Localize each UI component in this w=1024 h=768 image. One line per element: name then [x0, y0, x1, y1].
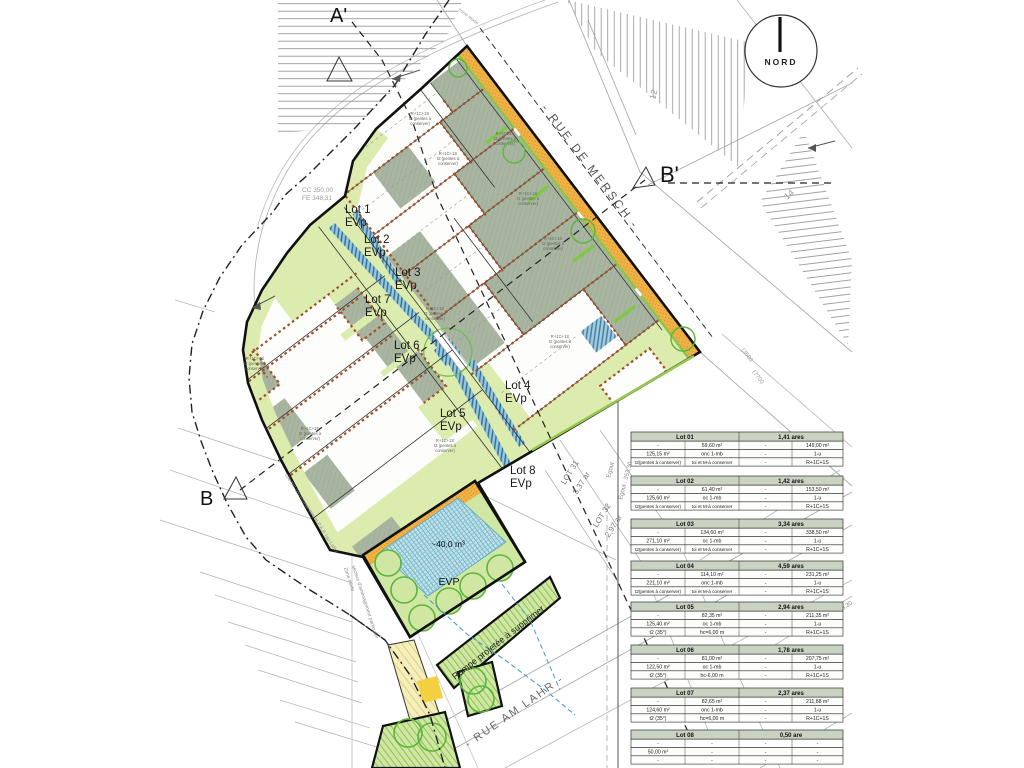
svg-text:Lot 4: Lot 4 — [505, 380, 531, 392]
svg-text:122,50 m²: 122,50 m² — [646, 665, 670, 671]
svg-text:-: - — [765, 460, 767, 466]
svg-text:Lot 5: Lot 5 — [440, 408, 466, 420]
svg-text:zone mixte: zone mixte — [457, 7, 480, 27]
svg-text:conserver): conserver) — [245, 366, 265, 371]
svg-text:-: - — [765, 547, 767, 553]
svg-text:1-u: 1-u — [814, 496, 822, 502]
svg-text:3,34 ares: 3,34 ares — [778, 522, 804, 528]
svg-text:1-u: 1-u — [814, 622, 822, 628]
svg-text:Lot 02: Lot 02 — [676, 479, 694, 485]
svg-text:82,65 m²: 82,65 m² — [702, 699, 723, 705]
svg-text:-: - — [765, 539, 767, 545]
svg-text:-: - — [657, 656, 659, 662]
svg-text:1-u: 1-u — [814, 452, 822, 458]
svg-text:Lot 2: Lot 2 — [364, 234, 390, 246]
svg-text:(7700: (7700 — [750, 370, 764, 386]
svg-text:Lot 7: Lot 7 — [365, 294, 391, 306]
svg-text:hc-6,00 m: hc-6,00 m — [700, 673, 723, 679]
svg-text:-: - — [765, 443, 767, 449]
svg-text:Lot 07: Lot 07 — [676, 691, 694, 697]
svg-text:Lot 1: Lot 1 — [345, 204, 371, 216]
svg-text:-: - — [765, 758, 767, 764]
svg-text:EVp: EVp — [364, 247, 386, 259]
svg-text:-: - — [765, 665, 767, 671]
svg-text:toi et M-à conserver: toi et M-à conserver — [692, 504, 733, 509]
svg-text:1-u: 1-u — [814, 539, 822, 545]
svg-text:211,35 m²: 211,35 m² — [806, 613, 829, 619]
svg-text:4,59 ares: 4,59 ares — [778, 564, 804, 570]
svg-text:-: - — [765, 630, 767, 636]
svg-text:Egout: Egout — [606, 461, 616, 478]
svg-text:-: - — [711, 750, 713, 756]
svg-text:conserver): conserver) — [543, 246, 563, 251]
svg-text:0,50 are: 0,50 are — [780, 733, 803, 739]
svg-text:-: - — [765, 708, 767, 714]
svg-text:-: - — [765, 581, 767, 587]
svg-text:oc 1-mb: oc 1-mb — [703, 665, 722, 671]
svg-text:-: - — [765, 487, 767, 493]
svg-text:EVp: EVp — [505, 393, 527, 405]
svg-text:207,75 m²: 207,75 m² — [806, 656, 830, 662]
svg-text:2,94 ares: 2,94 ares — [778, 605, 804, 611]
svg-text:conserver): conserver) — [435, 448, 455, 453]
svg-text:-: - — [817, 750, 819, 756]
svg-text:conserver): conserver) — [300, 436, 320, 441]
svg-text:t2 (35°): t2 (35°) — [649, 716, 666, 722]
svg-text:R+1C+1S: R+1C+1S — [806, 547, 829, 553]
svg-text:-: - — [765, 622, 767, 628]
svg-text:NORD: NORD — [764, 57, 797, 67]
svg-text:Lot 04: Lot 04 — [676, 564, 694, 570]
svg-text:Lot 01: Lot 01 — [676, 435, 694, 441]
svg-text:82,35 m²: 82,35 m² — [702, 613, 723, 619]
svg-text:1,42 ares: 1,42 ares — [778, 479, 804, 485]
svg-text:oc 1-mb: oc 1-mb — [703, 622, 722, 628]
svg-text:t2(pentes à conserver): t2(pentes à conserver) — [635, 589, 681, 594]
svg-text:1-u: 1-u — [814, 708, 822, 714]
svg-text:-: - — [765, 613, 767, 619]
svg-text:59,60 m²: 59,60 m² — [702, 443, 723, 449]
svg-text:t2(pentes à conserver): t2(pentes à conserver) — [635, 547, 681, 552]
svg-text:1,78 ares: 1,78 ares — [778, 648, 804, 654]
svg-text:-: - — [657, 613, 659, 619]
svg-text:t2 (35°): t2 (35°) — [649, 630, 666, 636]
svg-text:-: - — [657, 741, 659, 747]
svg-text:221,10 m²: 221,10 m² — [646, 581, 670, 587]
svg-text:t2(pentes à conserver): t2(pentes à conserver) — [635, 504, 681, 509]
svg-text:conserver): conserver) — [425, 316, 445, 321]
svg-text:conserver): conserver) — [410, 121, 430, 126]
svg-text:EVp: EVp — [394, 353, 416, 365]
svg-text:-: - — [765, 656, 767, 662]
svg-text:2,37 ares: 2,37 ares — [778, 691, 804, 697]
svg-text:onc 1-mb: onc 1-mb — [701, 708, 723, 714]
svg-text:conserver): conserver) — [550, 344, 570, 349]
svg-text:R+1C+1S: R+1C+1S — [806, 460, 829, 466]
svg-text:CC 350,00: CC 350,00 — [302, 187, 333, 194]
svg-text:211,88 m²: 211,88 m² — [806, 699, 829, 705]
svg-text:-: - — [765, 530, 767, 536]
svg-text:338,50 m²: 338,50 m² — [806, 530, 830, 536]
svg-text:134,60 m²: 134,60 m² — [700, 530, 724, 536]
svg-text:125,40 m²: 125,40 m² — [646, 622, 670, 628]
svg-text:~40,0 m³: ~40,0 m³ — [431, 539, 465, 549]
svg-text:-: - — [765, 452, 767, 458]
svg-text:-: - — [765, 572, 767, 578]
svg-text:Lot 6: Lot 6 — [394, 340, 420, 352]
svg-text:-: - — [657, 443, 659, 449]
svg-text:B: B — [200, 488, 213, 510]
svg-text:oc 1-mb: oc 1-mb — [703, 539, 722, 545]
svg-text:R+1C+1S: R+1C+1S — [806, 630, 829, 636]
svg-text:-: - — [711, 758, 713, 764]
svg-text:231,25 m²: 231,25 m² — [806, 572, 830, 578]
svg-text:EVP: EVP — [438, 576, 459, 588]
svg-text:125,15 m²: 125,15 m² — [646, 452, 670, 458]
svg-text:EVp: EVp — [345, 217, 367, 229]
svg-text:R+1C+1S: R+1C+1S — [806, 504, 829, 510]
svg-text:-: - — [765, 699, 767, 705]
svg-text:-: - — [765, 716, 767, 722]
svg-text:conserver): conserver) — [438, 161, 458, 166]
svg-text:-: - — [765, 496, 767, 502]
svg-text:toi et M-à conserver: toi et M-à conserver — [692, 547, 733, 552]
svg-text:149,00 m²: 149,00 m² — [806, 443, 830, 449]
svg-text:153,50 m²: 153,50 m² — [806, 487, 830, 493]
svg-text:-: - — [657, 487, 659, 493]
svg-text:hc=6,00 m: hc=6,00 m — [700, 630, 724, 636]
svg-text:-: - — [657, 758, 659, 764]
svg-text:-: - — [657, 572, 659, 578]
svg-text:t2 (35°): t2 (35°) — [649, 673, 666, 679]
svg-text:Lot 8: Lot 8 — [510, 465, 536, 477]
svg-text:1,41 ares: 1,41 ares — [778, 435, 804, 441]
svg-text:onc 1-mb: onc 1-mb — [701, 581, 723, 587]
svg-text:FE 348,31: FE 348,31 — [302, 195, 332, 202]
svg-text:t2(pentes à conserver): t2(pentes à conserver) — [635, 460, 681, 465]
svg-text:124,60 m²: 124,60 m² — [646, 708, 670, 714]
svg-text:Lot 08: Lot 08 — [676, 733, 694, 739]
svg-text:-: - — [657, 530, 659, 536]
svg-text:-: - — [711, 741, 713, 747]
svg-text:hc=6,00 m: hc=6,00 m — [700, 716, 724, 722]
svg-text:-: - — [817, 758, 819, 764]
svg-text:-: - — [765, 504, 767, 510]
svg-text:-: - — [765, 589, 767, 595]
svg-text:R+1C+1S: R+1C+1S — [806, 716, 829, 722]
svg-text:toi et M-à conserver: toi et M-à conserver — [692, 589, 733, 594]
svg-text:-: - — [765, 673, 767, 679]
svg-text:125,60 m²: 125,60 m² — [646, 496, 670, 502]
svg-text:oc 1-mb: oc 1-mb — [703, 496, 722, 502]
svg-text:114,10 m²: 114,10 m² — [701, 572, 724, 578]
svg-text:EVp: EVp — [365, 307, 387, 319]
svg-text:EVp: EVp — [510, 478, 532, 490]
svg-text:onc 1-mb: onc 1-mb — [701, 452, 723, 458]
svg-text:Lot 3: Lot 3 — [395, 267, 421, 279]
svg-text:50,00 m²: 50,00 m² — [648, 750, 669, 756]
svg-text:EVp: EVp — [440, 421, 462, 433]
svg-text:EVp: EVp — [395, 280, 417, 292]
svg-text:61,40 m²: 61,40 m² — [702, 487, 723, 493]
svg-text:(3500: (3500 — [739, 348, 753, 364]
svg-text:1-u: 1-u — [814, 581, 822, 587]
svg-text:B': B' — [660, 162, 679, 187]
svg-text:81,00 m²: 81,00 m² — [702, 656, 723, 662]
svg-text:-: - — [765, 750, 767, 756]
svg-text:A': A' — [330, 5, 347, 27]
svg-text:R+1C+1S: R+1C+1S — [806, 673, 829, 679]
svg-text:Lot 03: Lot 03 — [676, 522, 694, 528]
svg-text:-: - — [657, 699, 659, 705]
svg-text:toi et M-à conserver: toi et M-à conserver — [692, 460, 733, 465]
svg-text:conserver): conserver) — [518, 201, 538, 206]
svg-text:1-u: 1-u — [814, 665, 822, 671]
svg-text:-: - — [765, 741, 767, 747]
svg-text:R+1C+1S: R+1C+1S — [806, 589, 829, 595]
svg-text:Lot 06: Lot 06 — [676, 648, 694, 654]
svg-text:271,10 m²: 271,10 m² — [646, 539, 670, 545]
svg-text:-: - — [817, 741, 819, 747]
svg-text:Lot 05: Lot 05 — [676, 605, 694, 611]
